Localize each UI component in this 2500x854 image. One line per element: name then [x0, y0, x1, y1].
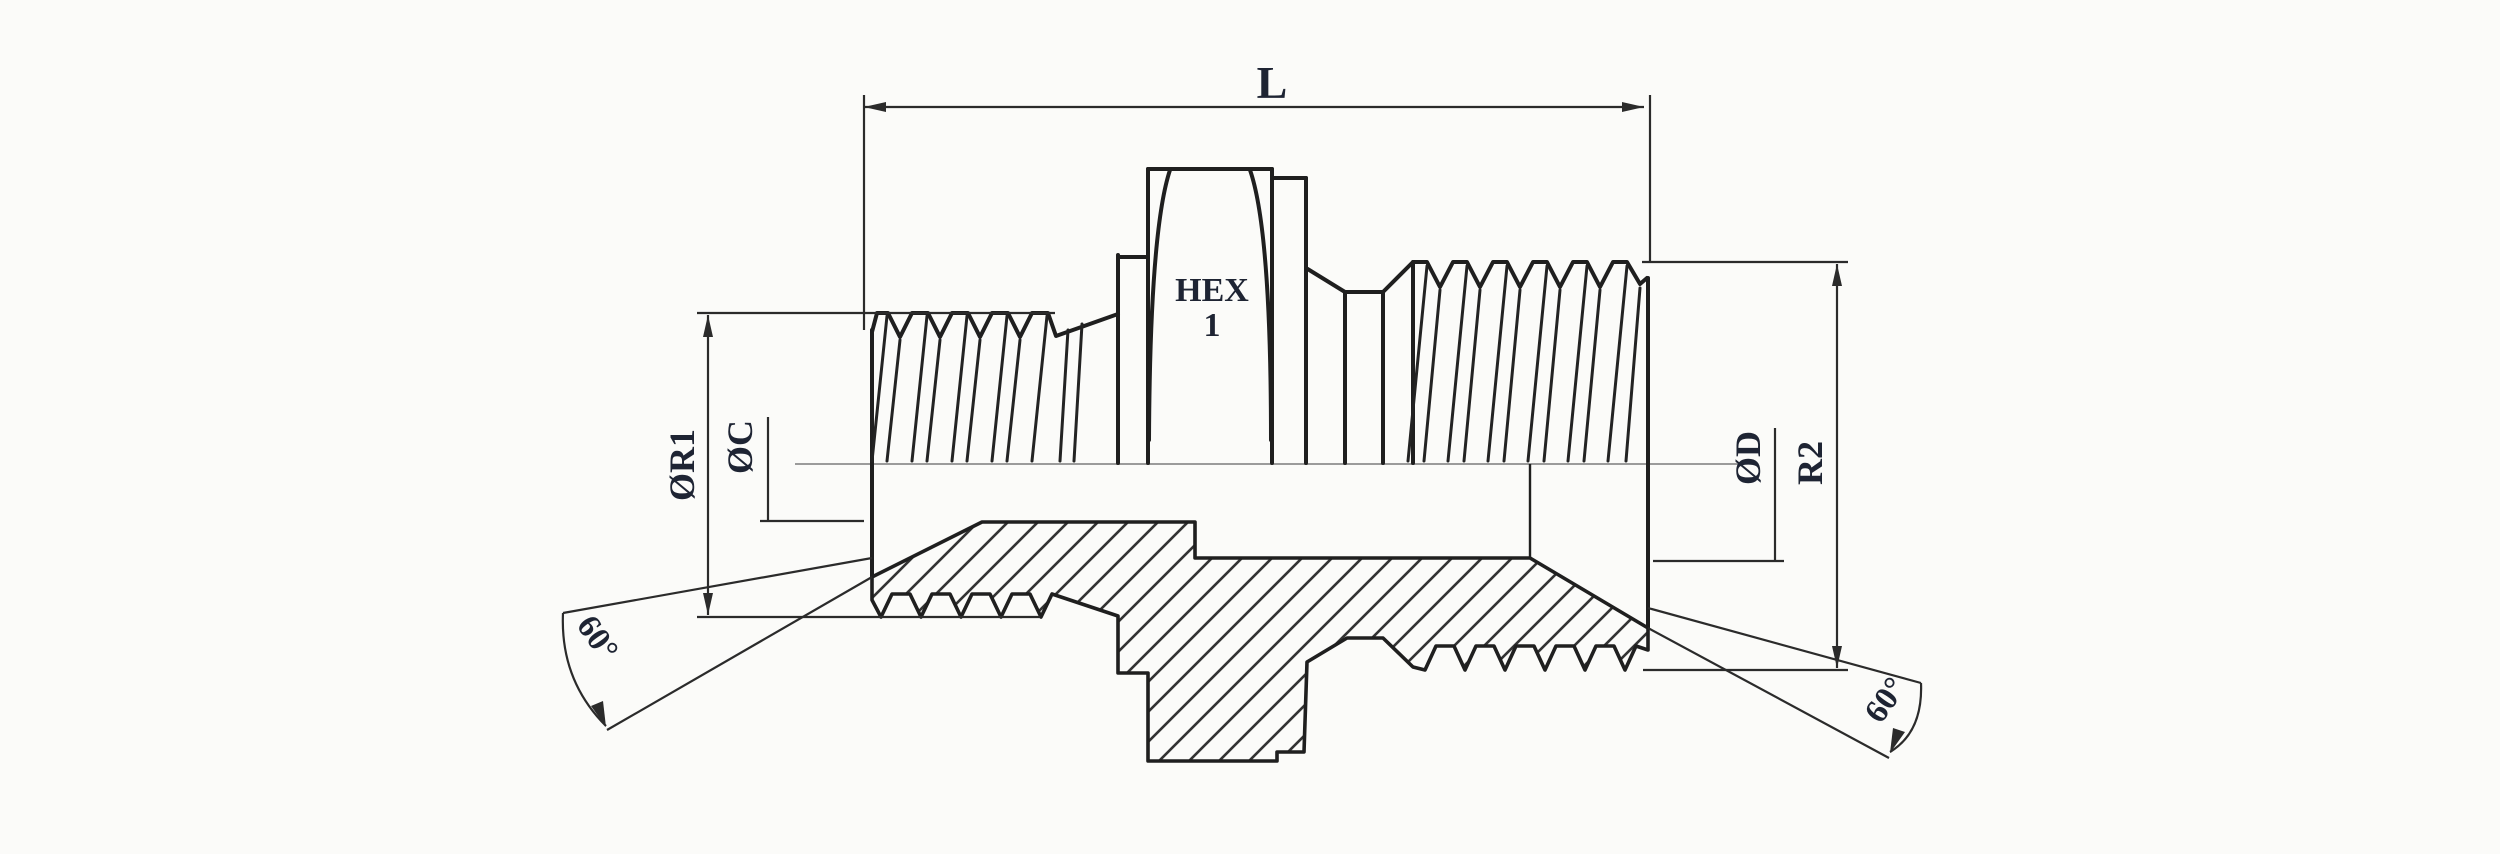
- angle-leg-lower: [607, 577, 872, 730]
- hex-corner-arc-left: [1149, 170, 1170, 440]
- technical-drawing-canvas: L ØR1 ØC ØD R2 60°: [0, 0, 2500, 854]
- arrowhead-left: [864, 102, 886, 112]
- angle-callout-left: 60°: [563, 558, 872, 730]
- arrowhead-down: [1832, 646, 1842, 668]
- label-diameter-c: ØC: [720, 420, 760, 474]
- label-angle-left: 60°: [569, 609, 625, 667]
- hatched-section-region: [872, 522, 1648, 761]
- angle-leg-lower: [1648, 628, 1889, 758]
- dimension-right-bore: ØD: [1653, 428, 1784, 561]
- part-cross-section: [872, 464, 1648, 761]
- angle-callout-right: 60°: [1648, 608, 1921, 758]
- dimension-left-bore: ØC: [720, 417, 864, 521]
- label-hex: HEX: [1175, 272, 1249, 309]
- arrowhead-down: [703, 593, 713, 615]
- left-thread-flank-lines: [872, 316, 1082, 461]
- angle-leg-upper: [1648, 608, 1921, 683]
- right-thread-flank-lines: [1408, 266, 1640, 461]
- label-hex-number: 1: [1204, 307, 1221, 344]
- label-length-l: L: [1257, 57, 1288, 108]
- label-diameter-r2: R2: [1790, 441, 1830, 485]
- arrowhead-right: [1622, 102, 1644, 112]
- arrowhead-up: [1832, 264, 1842, 286]
- arrowhead-up: [703, 315, 713, 337]
- hex-corner-arc-right: [1250, 170, 1271, 440]
- fitting-dimension-drawing: L ØR1 ØC ØD R2 60°: [0, 0, 2500, 854]
- arrowhead-arc: [591, 701, 606, 727]
- hex-size-marking: HEX 1: [1175, 272, 1249, 344]
- label-diameter-r1: ØR1: [662, 429, 702, 501]
- label-diameter-d: ØD: [1728, 431, 1768, 485]
